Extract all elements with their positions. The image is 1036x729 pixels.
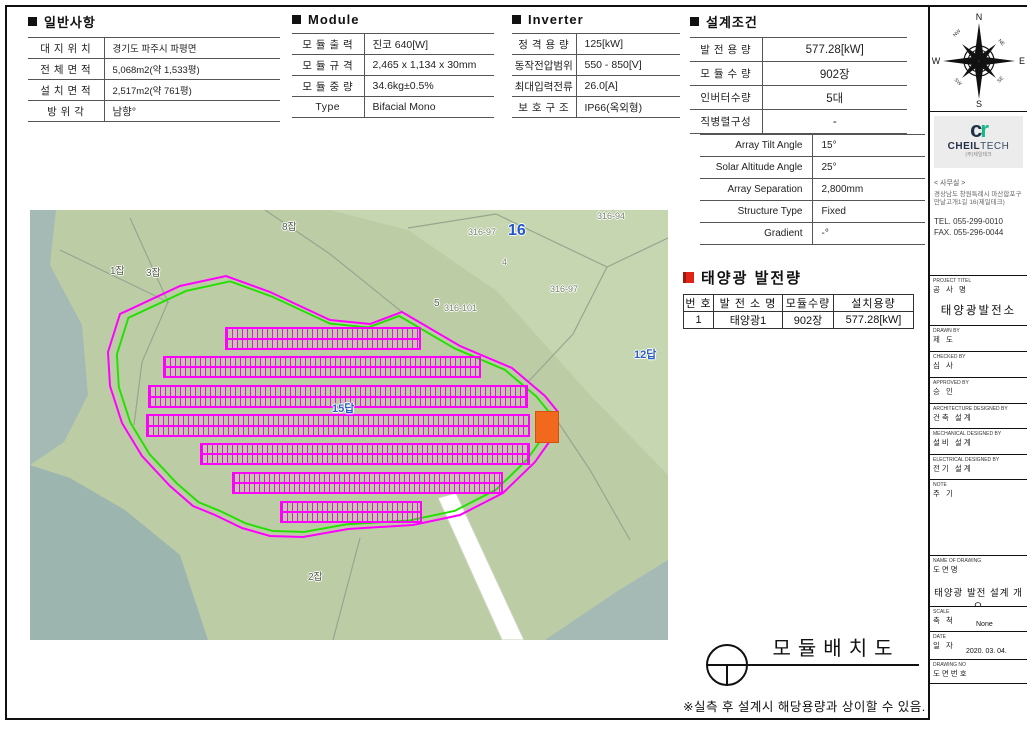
company-section: cr CHEILTECH (주)제일테크 < 사무실 > 경상남도 창원특례시 … bbox=[930, 112, 1027, 276]
title-block-en-label: ELECTRICAL DESIGNED BY bbox=[933, 457, 1024, 463]
title-block-row-scale: SCALE 축 척 None bbox=[930, 607, 1027, 632]
row-value: 2,517m2(약 761평) bbox=[104, 80, 280, 101]
title-block-kr-label: 도면번호 bbox=[933, 669, 1024, 679]
section-general-title: 일반사항 bbox=[28, 12, 280, 31]
title-block-kr-label: 설비 설계 bbox=[933, 438, 1024, 448]
map-label: 316-97 bbox=[468, 227, 496, 237]
red-flag-icon bbox=[683, 272, 694, 283]
row-label: Array Separation bbox=[700, 179, 812, 201]
map-label: 4 bbox=[502, 257, 507, 267]
section-module-title: Module bbox=[292, 12, 494, 27]
table-row: 전 체 면 적5,068m2(약 1,533평) bbox=[28, 59, 280, 80]
table-row: Array Separation2,800mm bbox=[700, 179, 925, 201]
row-value: 2,465 x 1,134 x 30mm bbox=[364, 55, 494, 76]
title-block-sidebar: N S W E NE NW SE SW cr CHEILTECH (주)제일테크… bbox=[928, 7, 1027, 720]
row-value: 26.0[A] bbox=[576, 76, 680, 97]
row-value: 34.6kg±0.5% bbox=[364, 76, 494, 97]
title-block-row-project: PROJECT TITEL 공 사 명 태양광발전소 bbox=[930, 276, 1027, 326]
row-value: 남향° bbox=[104, 101, 280, 122]
solar-panel-row bbox=[146, 414, 530, 437]
title-block-en-label: DRAWING NO bbox=[933, 662, 1024, 668]
row-label: 방 위 각 bbox=[28, 101, 104, 122]
title-block-en-label: NAME OF DRAWING bbox=[933, 558, 1024, 564]
solar-panel-row bbox=[200, 443, 530, 465]
table-row: 모 듈 수 량902장 bbox=[690, 62, 907, 86]
section-inverter: Inverter 정 격 용 량125[kW] 동작전압범위550 - 850[… bbox=[512, 12, 680, 118]
cell-number: 1 bbox=[684, 312, 714, 329]
row-label: Array Tilt Angle bbox=[700, 135, 812, 157]
table-row: 대 지 위 치경기도 파주시 파평면 bbox=[28, 38, 280, 59]
section-title-text: 일반사항 bbox=[44, 12, 96, 31]
generation-table: 번 호 발 전 소 명 모듈수량 설치용량 1 태양광1 902장 577.28… bbox=[683, 294, 914, 329]
title-block-en-label: PROJECT TITEL bbox=[933, 278, 1024, 284]
row-value: Fixed bbox=[812, 201, 925, 223]
row-label: 모 듈 규 격 bbox=[292, 55, 364, 76]
map-label: 316-101 bbox=[444, 303, 477, 313]
company-name-sub: (주)제일테크 bbox=[934, 152, 1023, 159]
col-header: 번 호 bbox=[684, 295, 714, 312]
row-label: 정 격 용 량 bbox=[512, 34, 576, 55]
table-row: 동작전압범위550 - 850[V] bbox=[512, 55, 680, 76]
row-value: 577.28[kW] bbox=[762, 38, 907, 62]
table-header-row: 번 호 발 전 소 명 모듈수량 설치용량 bbox=[684, 295, 914, 312]
svg-text:SW: SW bbox=[952, 77, 962, 87]
row-label: 모 듈 중 량 bbox=[292, 76, 364, 97]
row-label: 인버터수량 bbox=[690, 86, 762, 110]
title-block-kr-label: 건축 설계 bbox=[933, 413, 1024, 423]
title-block-en-label: ARCHITECTURE DESIGNED BY bbox=[933, 406, 1024, 412]
row-label: Gradient bbox=[700, 223, 812, 245]
row-value: Bifacial Mono bbox=[364, 97, 494, 118]
title-block-kr-label: 심 사 bbox=[933, 361, 1024, 371]
solar-panel-row bbox=[225, 327, 421, 350]
row-value: 경기도 파주시 파평면 bbox=[104, 38, 280, 59]
solar-panel-row bbox=[163, 356, 481, 378]
col-header: 모듈수량 bbox=[783, 295, 834, 312]
title-block-kr-label: 도면명 bbox=[933, 565, 1024, 575]
cell-plant-name: 태양광1 bbox=[714, 312, 783, 329]
title-block-row-checked: CHECKED BY 심 사 bbox=[930, 352, 1027, 378]
title-block-row-date: DATE 일 자 2020. 03. 04. bbox=[930, 632, 1027, 660]
col-header: 설치용량 bbox=[834, 295, 914, 312]
row-label: Type bbox=[292, 97, 364, 118]
row-value: 15° bbox=[812, 135, 925, 157]
section-title-text: Module bbox=[308, 12, 360, 27]
drawing-title-circle-tick bbox=[726, 665, 728, 686]
footnote: ※실측 후 설계시 해당용량과 상이할 수 있음. bbox=[683, 696, 926, 715]
cell-capacity: 577.28[kW] bbox=[834, 312, 914, 329]
map-label: 1잡 bbox=[110, 262, 125, 277]
table-row: Solar Altitude Angle25° bbox=[700, 157, 925, 179]
title-block-kr-label: 전기 설계 bbox=[933, 464, 1024, 474]
company-logo: cr CHEILTECH (주)제일테크 bbox=[934, 116, 1023, 168]
col-header: 발 전 소 명 bbox=[714, 295, 783, 312]
fax: FAX. 055-296-0044 bbox=[934, 227, 1023, 238]
svg-text:W: W bbox=[931, 56, 940, 66]
section-title-text: 설계조건 bbox=[706, 12, 758, 31]
company-name-bold: CHEIL bbox=[948, 141, 981, 152]
drawing-sheet: 일반사항 대 지 위 치경기도 파주시 파평면 전 체 면 적5,068m2(약… bbox=[0, 0, 1036, 729]
title-block-row-drawing-name: NAME OF DRAWING 도면명 태양광 발전 설계 개요 bbox=[930, 556, 1027, 607]
design-subtable: Array Tilt Angle15° Solar Altitude Angle… bbox=[700, 134, 925, 245]
table-row: 모 듈 규 격2,465 x 1,134 x 30mm bbox=[292, 55, 494, 76]
solar-panel-row bbox=[232, 472, 503, 494]
table-row: 방 위 각남향° bbox=[28, 101, 280, 122]
table-row: 모 듈 출 력진코 640[W] bbox=[292, 34, 494, 55]
square-bullet-icon bbox=[690, 17, 699, 26]
title-block-row-mechanical: MECHANICAL DESIGNED BY 설비 설계 bbox=[930, 429, 1027, 455]
square-bullet-icon bbox=[292, 15, 301, 24]
section-design-title: 설계조건 bbox=[690, 12, 925, 31]
logo-mark-icon: cr bbox=[934, 119, 1023, 141]
section-title-text: 태양광 발전량 bbox=[701, 267, 802, 288]
office-label: < 사무실 > bbox=[934, 178, 1023, 188]
svg-text:NE: NE bbox=[996, 38, 1006, 48]
row-value: -° bbox=[812, 223, 925, 245]
title-block-en-label: MECHANICAL DESIGNED BY bbox=[933, 431, 1024, 437]
row-value: 902장 bbox=[762, 62, 907, 86]
compass-icon: N S W E NE NW SE SW bbox=[931, 11, 1027, 107]
logo-letter-c: c bbox=[970, 117, 980, 142]
table-row: 모 듈 중 량34.6kg±0.5% bbox=[292, 76, 494, 97]
svg-text:SE: SE bbox=[996, 75, 1005, 84]
svg-text:E: E bbox=[1018, 56, 1024, 66]
title-block-en-label: DRAWN BY bbox=[933, 328, 1024, 334]
row-value: 5대 bbox=[762, 86, 907, 110]
table-row: 인버터수량5대 bbox=[690, 86, 907, 110]
section-generation-title: 태양광 발전량 bbox=[683, 267, 923, 288]
row-label: Structure Type bbox=[700, 201, 812, 223]
svg-text:N: N bbox=[975, 12, 982, 22]
table-row: 1 태양광1 902장 577.28[kW] bbox=[684, 312, 914, 329]
address-line-1: 경상남도 창원특례시 마산합포구 bbox=[934, 191, 1023, 199]
equipment-pad bbox=[535, 411, 559, 443]
table-row: 직병렬구성- bbox=[690, 110, 907, 134]
square-bullet-icon bbox=[28, 17, 37, 26]
row-label: 대 지 위 치 bbox=[28, 38, 104, 59]
company-name: CHEILTECH bbox=[934, 141, 1023, 152]
title-block-content: None bbox=[976, 621, 993, 628]
map-label: 5 bbox=[434, 298, 440, 309]
map-label: 3잡 bbox=[146, 264, 161, 279]
row-label: 전 체 면 적 bbox=[28, 59, 104, 80]
title-block-en-label: SCALE bbox=[933, 609, 1024, 615]
map-label: 15답 bbox=[332, 400, 354, 416]
section-generation: 태양광 발전량 번 호 발 전 소 명 모듈수량 설치용량 1 태양광1 902… bbox=[683, 267, 923, 329]
title-block-en-label: CHECKED BY bbox=[933, 354, 1024, 360]
drawing-title: 모듈배치도 bbox=[752, 632, 920, 661]
module-table: 모 듈 출 력진코 640[W] 모 듈 규 격2,465 x 1,134 x … bbox=[292, 33, 494, 118]
title-block-row-approved: APPROVED BY 승 인 bbox=[930, 378, 1027, 404]
design-table: 발 전 용 량577.28[kW] 모 듈 수 량902장 인버터수량5대 직병… bbox=[690, 37, 907, 134]
row-value: 25° bbox=[812, 157, 925, 179]
map-label: 16 bbox=[508, 222, 526, 240]
section-design: 설계조건 발 전 용 량577.28[kW] 모 듈 수 량902장 인버터수량… bbox=[690, 12, 925, 245]
logo-letter-r: r bbox=[980, 117, 987, 142]
table-row: Array Tilt Angle15° bbox=[700, 135, 925, 157]
row-value: 5,068m2(약 1,533평) bbox=[104, 59, 280, 80]
section-general: 일반사항 대 지 위 치경기도 파주시 파평면 전 체 면 적5,068m2(약… bbox=[28, 12, 280, 122]
map-label: 316-97 bbox=[550, 284, 578, 294]
table-row: 설 치 면 적2,517m2(약 761평) bbox=[28, 80, 280, 101]
table-row: Structure TypeFixed bbox=[700, 201, 925, 223]
title-block-kr-label: 공 사 명 bbox=[933, 285, 1024, 295]
table-row: 최대입력전류26.0[A] bbox=[512, 76, 680, 97]
drawing-title-underline bbox=[707, 664, 919, 666]
row-label: 발 전 용 량 bbox=[690, 38, 762, 62]
section-inverter-title: Inverter bbox=[512, 12, 680, 27]
title-block-empty bbox=[930, 684, 1027, 720]
row-label: 설 치 면 적 bbox=[28, 80, 104, 101]
row-label: 보 호 구 조 bbox=[512, 97, 576, 118]
row-value: 2,800mm bbox=[812, 179, 925, 201]
section-title-text: Inverter bbox=[528, 12, 584, 27]
title-block-row-drawn: DRAWN BY 제 도 bbox=[930, 326, 1027, 352]
table-row: TypeBifacial Mono bbox=[292, 97, 494, 118]
cell-module-count: 902장 bbox=[783, 312, 834, 329]
general-table: 대 지 위 치경기도 파주시 파평면 전 체 면 적5,068m2(약 1,53… bbox=[28, 37, 280, 122]
row-label: 직병렬구성 bbox=[690, 110, 762, 134]
table-row: Gradient-° bbox=[700, 223, 925, 245]
inverter-table: 정 격 용 량125[kW] 동작전압범위550 - 850[V] 최대입력전류… bbox=[512, 33, 680, 118]
square-bullet-icon bbox=[512, 15, 521, 24]
row-label: 모 듈 출 력 bbox=[292, 34, 364, 55]
solar-panel-row bbox=[280, 501, 422, 523]
title-block-row-drawing-no: DRAWING NO 도면번호 bbox=[930, 660, 1027, 684]
title-block-en-label: NOTE bbox=[933, 482, 1024, 488]
row-value: - bbox=[762, 110, 907, 134]
title-block-row-electrical: ELECTRICAL DESIGNED BY 전기 설계 bbox=[930, 455, 1027, 480]
row-label: 모 듈 수 량 bbox=[690, 62, 762, 86]
table-row: 보 호 구 조IP66(옥외형) bbox=[512, 97, 680, 118]
section-module: Module 모 듈 출 력진코 640[W] 모 듈 규 격2,465 x 1… bbox=[292, 12, 494, 118]
site-layout-map: 8잡1잡3잡316-9716316-9445316-101316-9712답15… bbox=[30, 210, 668, 640]
address-line-2: 만날고개1길 16(제일테크) bbox=[934, 199, 1023, 207]
row-label: Solar Altitude Angle bbox=[700, 157, 812, 179]
table-row: 정 격 용 량125[kW] bbox=[512, 34, 680, 55]
title-block-kr-label: 승 인 bbox=[933, 387, 1024, 397]
company-name-light: TECH bbox=[980, 141, 1009, 152]
title-block-kr-label: 주 기 bbox=[933, 489, 1024, 499]
row-label: 동작전압범위 bbox=[512, 55, 576, 76]
title-block-row-architecture: ARCHITECTURE DESIGNED BY 건축 설계 bbox=[930, 404, 1027, 429]
map-label: 2잡 bbox=[308, 568, 323, 583]
tel: TEL. 055-299-0010 bbox=[934, 216, 1023, 227]
table-row: 발 전 용 량577.28[kW] bbox=[690, 38, 907, 62]
title-block-content: 태양광 발전 설계 개요 bbox=[933, 585, 1024, 607]
title-block-content: 2020. 03. 04. bbox=[966, 648, 1007, 655]
title-block-en-label: DATE bbox=[933, 634, 1024, 640]
map-label: 316-94 bbox=[597, 211, 625, 221]
svg-text:S: S bbox=[975, 99, 981, 107]
row-label: 최대입력전류 bbox=[512, 76, 576, 97]
title-block-content: 태양광발전소 bbox=[933, 302, 1024, 318]
row-value: 125[kW] bbox=[576, 34, 680, 55]
title-block-row-note: NOTE 주 기 bbox=[930, 480, 1027, 556]
row-value: 550 - 850[V] bbox=[576, 55, 680, 76]
map-label: 8잡 bbox=[282, 218, 297, 233]
svg-text:NW: NW bbox=[952, 28, 962, 38]
title-block-en-label: APPROVED BY bbox=[933, 380, 1024, 386]
company-address: 경상남도 창원특례시 마산합포구 만날고개1길 16(제일테크) bbox=[934, 191, 1023, 207]
row-value: 진코 640[W] bbox=[364, 34, 494, 55]
title-block-kr-label: 제 도 bbox=[933, 335, 1024, 345]
map-label: 12답 bbox=[634, 346, 656, 362]
row-value: IP66(옥외형) bbox=[576, 97, 680, 118]
company-contact: TEL. 055-299-0010 FAX. 055-296-0044 bbox=[934, 216, 1023, 238]
compass-section: N S W E NE NW SE SW bbox=[930, 7, 1027, 112]
